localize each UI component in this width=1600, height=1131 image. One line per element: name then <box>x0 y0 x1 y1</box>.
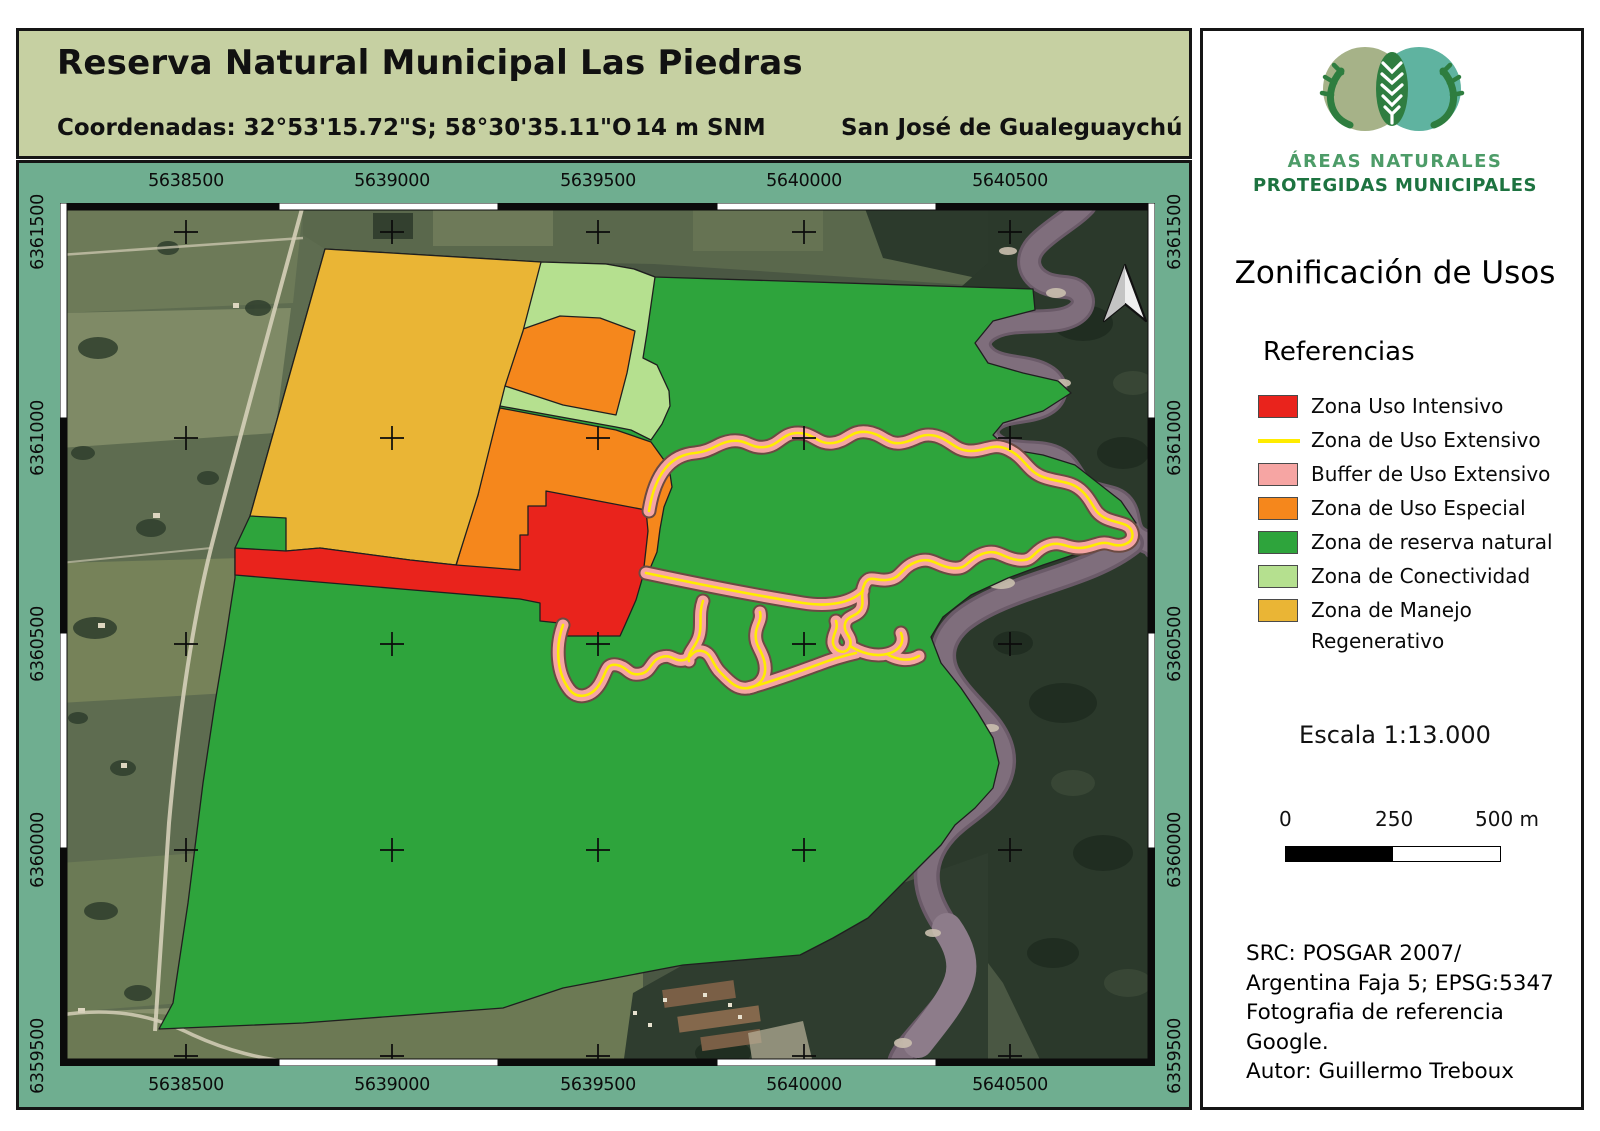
scalebar-label-250: 250 <box>1375 807 1413 831</box>
scalebar-white-segment <box>1393 847 1500 861</box>
grid-label-right: 6360000 <box>1165 812 1185 888</box>
grid-label-top: 5640500 <box>972 171 1048 191</box>
grid-label-bottom: 5640500 <box>972 1075 1048 1095</box>
legend-swatch <box>1258 565 1298 588</box>
grid-label-top: 5639000 <box>354 171 430 191</box>
grid-label-bottom: 5640000 <box>766 1075 842 1095</box>
areas-naturales-logo-icon <box>1203 39 1587 149</box>
grid-label-right: 6360500 <box>1165 606 1185 682</box>
map-canvas: 5638500 5639000 5639500 5640000 5640500 … <box>16 160 1192 1110</box>
legend-item-manejo-line2: Regenerativo <box>1311 629 1444 653</box>
grid-label-right: 6361000 <box>1165 400 1185 476</box>
attribution-block: SRC: POSGAR 2007/ Argentina Faja 5; EPSG… <box>1246 939 1554 1087</box>
legend-heading: Referencias <box>1263 337 1415 367</box>
scalebar <box>1285 846 1501 862</box>
coordinates-text: Coordenadas: 32°53'15.72"S; 58°30'35.11"… <box>57 115 632 141</box>
scale-text: Escala 1:13.000 <box>1203 721 1587 749</box>
grid-label-top: 5639500 <box>560 171 636 191</box>
zoning-map <box>60 203 1155 1066</box>
grid-label-left: 6361000 <box>28 400 48 476</box>
grid-label-right: 6359500 <box>1165 1018 1185 1094</box>
scalebar-label-500: 500 m <box>1475 807 1539 831</box>
attribution-line: Google. <box>1246 1028 1554 1058</box>
city-text: San José de Gualeguaychú <box>841 115 1182 141</box>
attribution-line: Autor: Guillermo Treboux <box>1246 1057 1554 1087</box>
grid-label-left: 6361500 <box>28 194 48 270</box>
grid-label-left: 6360000 <box>28 812 48 888</box>
grid-label-left: 6359500 <box>28 1018 48 1094</box>
logo-text-line2: PROTEGIDAS MUNICIPALES <box>1203 175 1587 196</box>
map-layout-page: Reserva Natural Municipal Las Piedras Co… <box>0 0 1600 1131</box>
legend-swatch <box>1258 599 1298 622</box>
grid-label-bottom: 5639000 <box>354 1075 430 1095</box>
scalebar-label-0: 0 <box>1279 807 1292 831</box>
elevation-text: 14 m SNM <box>635 115 766 141</box>
grid-label-bottom: 5639500 <box>560 1075 636 1095</box>
legend-swatch <box>1258 463 1298 486</box>
grid-label-top: 5640000 <box>766 171 842 191</box>
side-panel: ÁREAS NATURALES PROTEGIDAS MUNICIPALES Z… <box>1200 28 1584 1110</box>
logo-text-line1: ÁREAS NATURALES <box>1203 151 1587 172</box>
legend-swatch <box>1258 531 1298 554</box>
page-title: Reserva Natural Municipal Las Piedras <box>57 43 803 83</box>
scalebar-black-segment <box>1286 847 1393 861</box>
legend-swatch <box>1258 497 1298 520</box>
grid-label-right: 6361500 <box>1165 194 1185 270</box>
grid-label-top: 5638500 <box>148 171 224 191</box>
attribution-line: SRC: POSGAR 2007/ <box>1246 939 1554 969</box>
grid-label-bottom: 5638500 <box>148 1075 224 1095</box>
grid-label-left: 6360500 <box>28 606 48 682</box>
legend-swatch <box>1258 395 1298 418</box>
attribution-line: Argentina Faja 5; EPSG:5347 <box>1246 969 1554 999</box>
header: Reserva Natural Municipal Las Piedras Co… <box>16 28 1192 159</box>
attribution-line: Fotografia de referencia <box>1246 998 1554 1028</box>
legend-line-swatch <box>1258 439 1300 443</box>
map-subject-title: Zonificación de Usos <box>1203 255 1587 291</box>
